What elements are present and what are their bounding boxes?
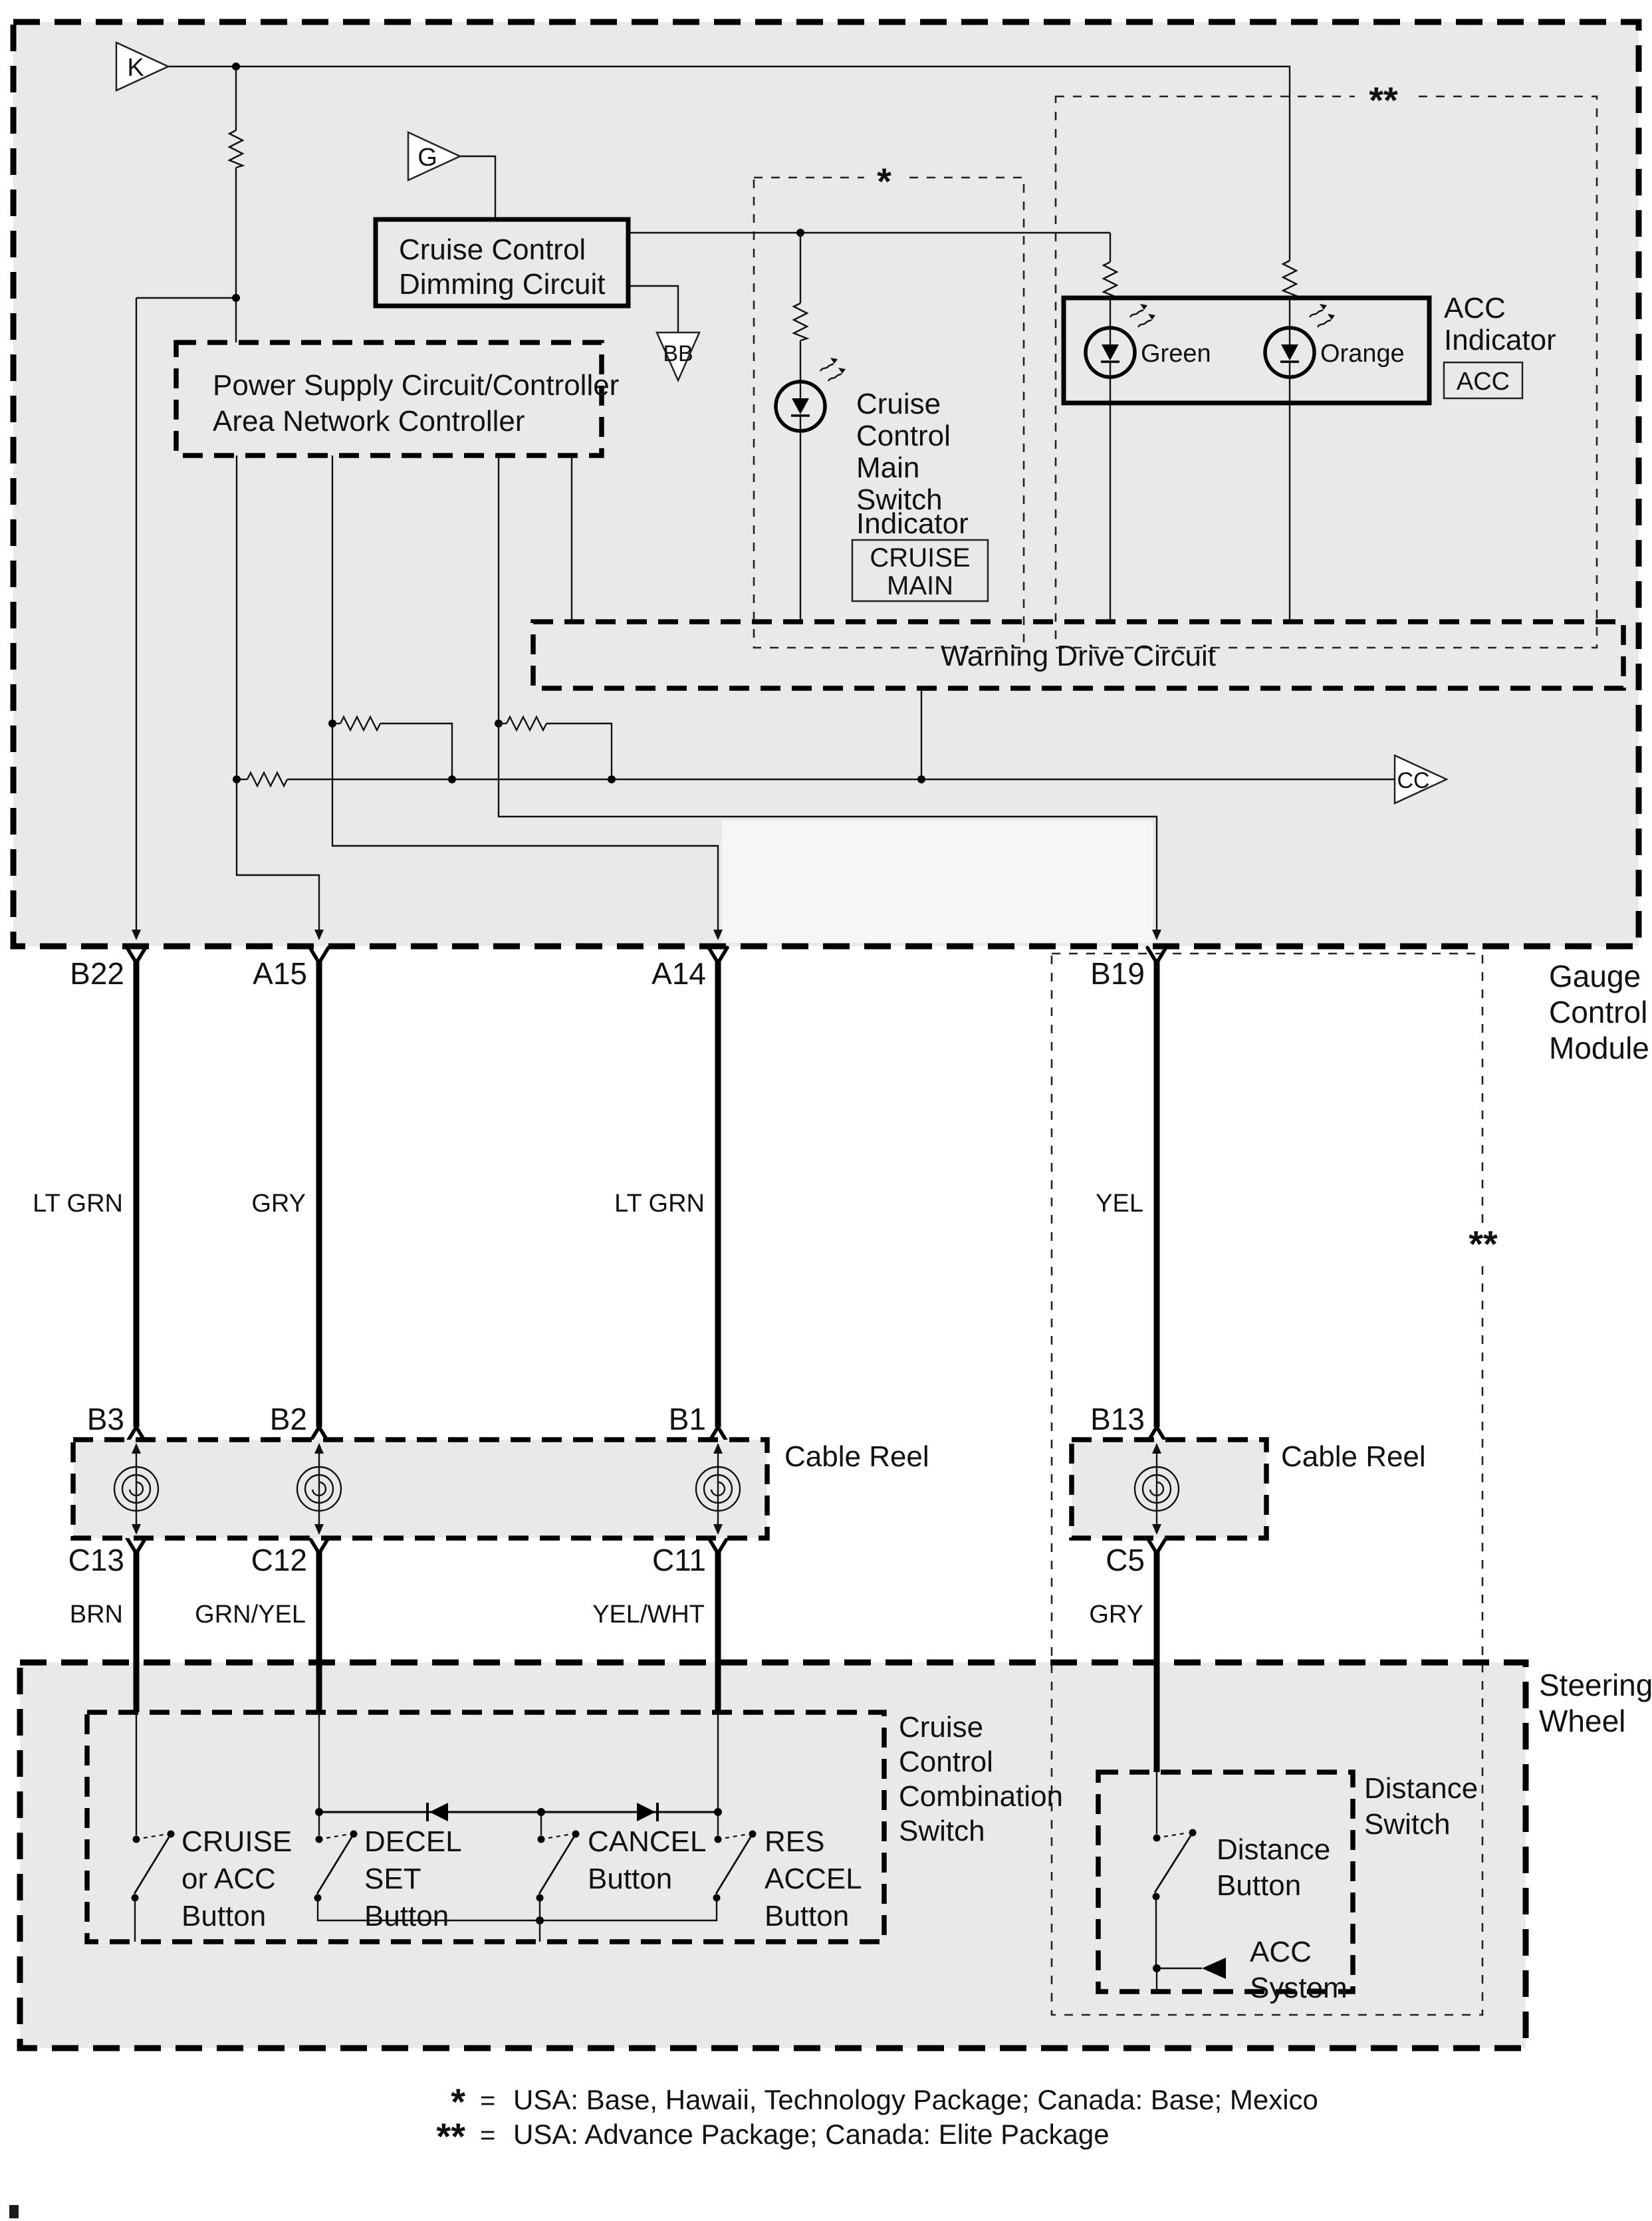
switch4-line-2: ACCEL bbox=[765, 1863, 862, 1895]
reel-pin-c11: C11 bbox=[652, 1543, 706, 1577]
wire-color-b19: YEL bbox=[1096, 1190, 1143, 1218]
acc-badge-label: ACC bbox=[1457, 368, 1510, 396]
gauge-module-notch bbox=[722, 821, 1153, 943]
switch3-line-2: Button bbox=[588, 1863, 672, 1895]
steering-wheel-label-2: Wheel bbox=[1539, 1704, 1625, 1738]
reel-pin-b1: B1 bbox=[669, 1402, 706, 1436]
switch3-line-1: CANCEL bbox=[588, 1825, 707, 1858]
switch1-line-2: or ACC bbox=[181, 1863, 276, 1895]
footnote-2-eq: = bbox=[480, 2121, 495, 2150]
cable-reel-right-label: Cable Reel bbox=[1281, 1440, 1426, 1473]
reel-pin-b3: B3 bbox=[87, 1402, 124, 1436]
pin-a14-label: A14 bbox=[651, 956, 706, 991]
double-star-top-mark: ** bbox=[1369, 79, 1398, 121]
wire-color-c13: BRN bbox=[70, 1601, 123, 1629]
gauge-control-module-fill bbox=[13, 22, 1639, 946]
switch2-line-3: Button bbox=[364, 1900, 449, 1932]
combo-label-3: Combination bbox=[899, 1780, 1063, 1813]
cruise-main-line-2: Control bbox=[856, 420, 951, 452]
wire-color-c5: GRY bbox=[1089, 1601, 1143, 1629]
distance-button-label-1: Distance bbox=[1217, 1833, 1330, 1866]
distance-button-label-2: Button bbox=[1217, 1869, 1301, 1902]
combo-label-2: Control bbox=[899, 1746, 993, 1778]
acc-system-label-1: ACC bbox=[1250, 1936, 1312, 1968]
footnote-1-text: USA: Base, Hawaii, Technology Package; C… bbox=[513, 2084, 1318, 2115]
acc-system-label-2: System bbox=[1250, 1972, 1348, 2004]
cruise-main-line-1: Cruise bbox=[856, 388, 941, 420]
double-star-side-mark: ** bbox=[1469, 1223, 1498, 1265]
orange-led-label: Orange bbox=[1320, 340, 1405, 368]
pin-b22-label: B22 bbox=[70, 956, 124, 991]
reel-pin-b2: B2 bbox=[270, 1402, 307, 1436]
cruise-main-line-5: Indicator bbox=[856, 507, 969, 540]
power-line-2: Area Network Controller bbox=[213, 405, 525, 438]
cable-reel-left-label: Cable Reel bbox=[784, 1440, 929, 1473]
distance-switch-label-1: Distance bbox=[1364, 1772, 1478, 1805]
acc-indicator-line-2: Indicator bbox=[1444, 324, 1556, 356]
footnote-2-text: USA: Advance Package; Canada: Elite Pack… bbox=[513, 2119, 1110, 2150]
cruise-main-badge-line-2: MAIN bbox=[887, 571, 953, 600]
reel-pin-c5: C5 bbox=[1106, 1543, 1145, 1577]
harness-wires bbox=[127, 948, 1166, 1772]
wire-color-a15: GRY bbox=[251, 1190, 306, 1218]
footnote-2-mark: ** bbox=[436, 2115, 465, 2157]
distance-switch-label-2: Switch bbox=[1364, 1808, 1451, 1841]
cruise-main-line-3: Main bbox=[856, 452, 919, 484]
footnote-1-eq: = bbox=[480, 2086, 495, 2115]
dimming-line-1: Cruise Control bbox=[399, 233, 586, 266]
connector-bb-label: BB bbox=[663, 341, 693, 366]
page-corner-mark bbox=[9, 2205, 19, 2218]
footnote-2: ** = USA: Advance Package; Canada: Elite… bbox=[436, 2115, 1109, 2157]
switch4-line-3: Button bbox=[765, 1900, 849, 1932]
connector-k-label: K bbox=[127, 54, 144, 82]
pin-b19-label: B19 bbox=[1090, 956, 1145, 991]
connector-g-label: G bbox=[417, 144, 437, 172]
cable-reel-right-box bbox=[1072, 1440, 1266, 1538]
cruise-main-badge-line-1: CRUISE bbox=[870, 543, 970, 573]
wire-color-c11: YEL/WHT bbox=[592, 1601, 705, 1629]
steering-wheel-label-1: Steering bbox=[1539, 1668, 1652, 1702]
wiring-diagram-page: * ** ** bbox=[0, 0, 1652, 2221]
switch1-line-3: Button bbox=[181, 1900, 266, 1932]
acc-indicator-line-1: ACC bbox=[1444, 292, 1506, 325]
switch2-line-1: DECEL bbox=[364, 1825, 462, 1858]
connector-cc-label: CC bbox=[1397, 768, 1429, 793]
gauge-module-label-2: Control bbox=[1549, 995, 1647, 1029]
switch4-line-1: RES bbox=[765, 1825, 824, 1858]
warning-drive-circuit-label: Warning Drive Circuit bbox=[941, 640, 1216, 672]
reel-pin-b13: B13 bbox=[1090, 1402, 1145, 1436]
wire-color-c12: GRN/YEL bbox=[195, 1601, 306, 1629]
green-led-label: Green bbox=[1141, 340, 1211, 368]
cable-reel-left-box bbox=[73, 1440, 767, 1538]
reel-pin-c13: C13 bbox=[68, 1543, 124, 1577]
gauge-module-label-1: Gauge bbox=[1549, 959, 1641, 993]
power-line-1: Power Supply Circuit/Controller bbox=[213, 369, 619, 402]
gauge-module-label-3: Module bbox=[1549, 1031, 1649, 1065]
combo-label-4: Switch bbox=[899, 1815, 985, 1847]
switch1-line-1: CRUISE bbox=[181, 1825, 292, 1858]
reel-pin-c12: C12 bbox=[251, 1543, 307, 1577]
pin-a15-label: A15 bbox=[253, 956, 307, 991]
star-region-mark: * bbox=[877, 160, 891, 202]
footnote-1: * = USA: Base, Hawaii, Technology Packag… bbox=[451, 2081, 1318, 2123]
combo-label-1: Cruise bbox=[899, 1711, 983, 1744]
wire-color-b22: LT GRN bbox=[33, 1190, 123, 1218]
wire-color-a14: LT GRN bbox=[614, 1190, 705, 1218]
switch2-line-2: SET bbox=[364, 1863, 421, 1895]
dimming-line-2: Dimming Circuit bbox=[399, 268, 605, 301]
